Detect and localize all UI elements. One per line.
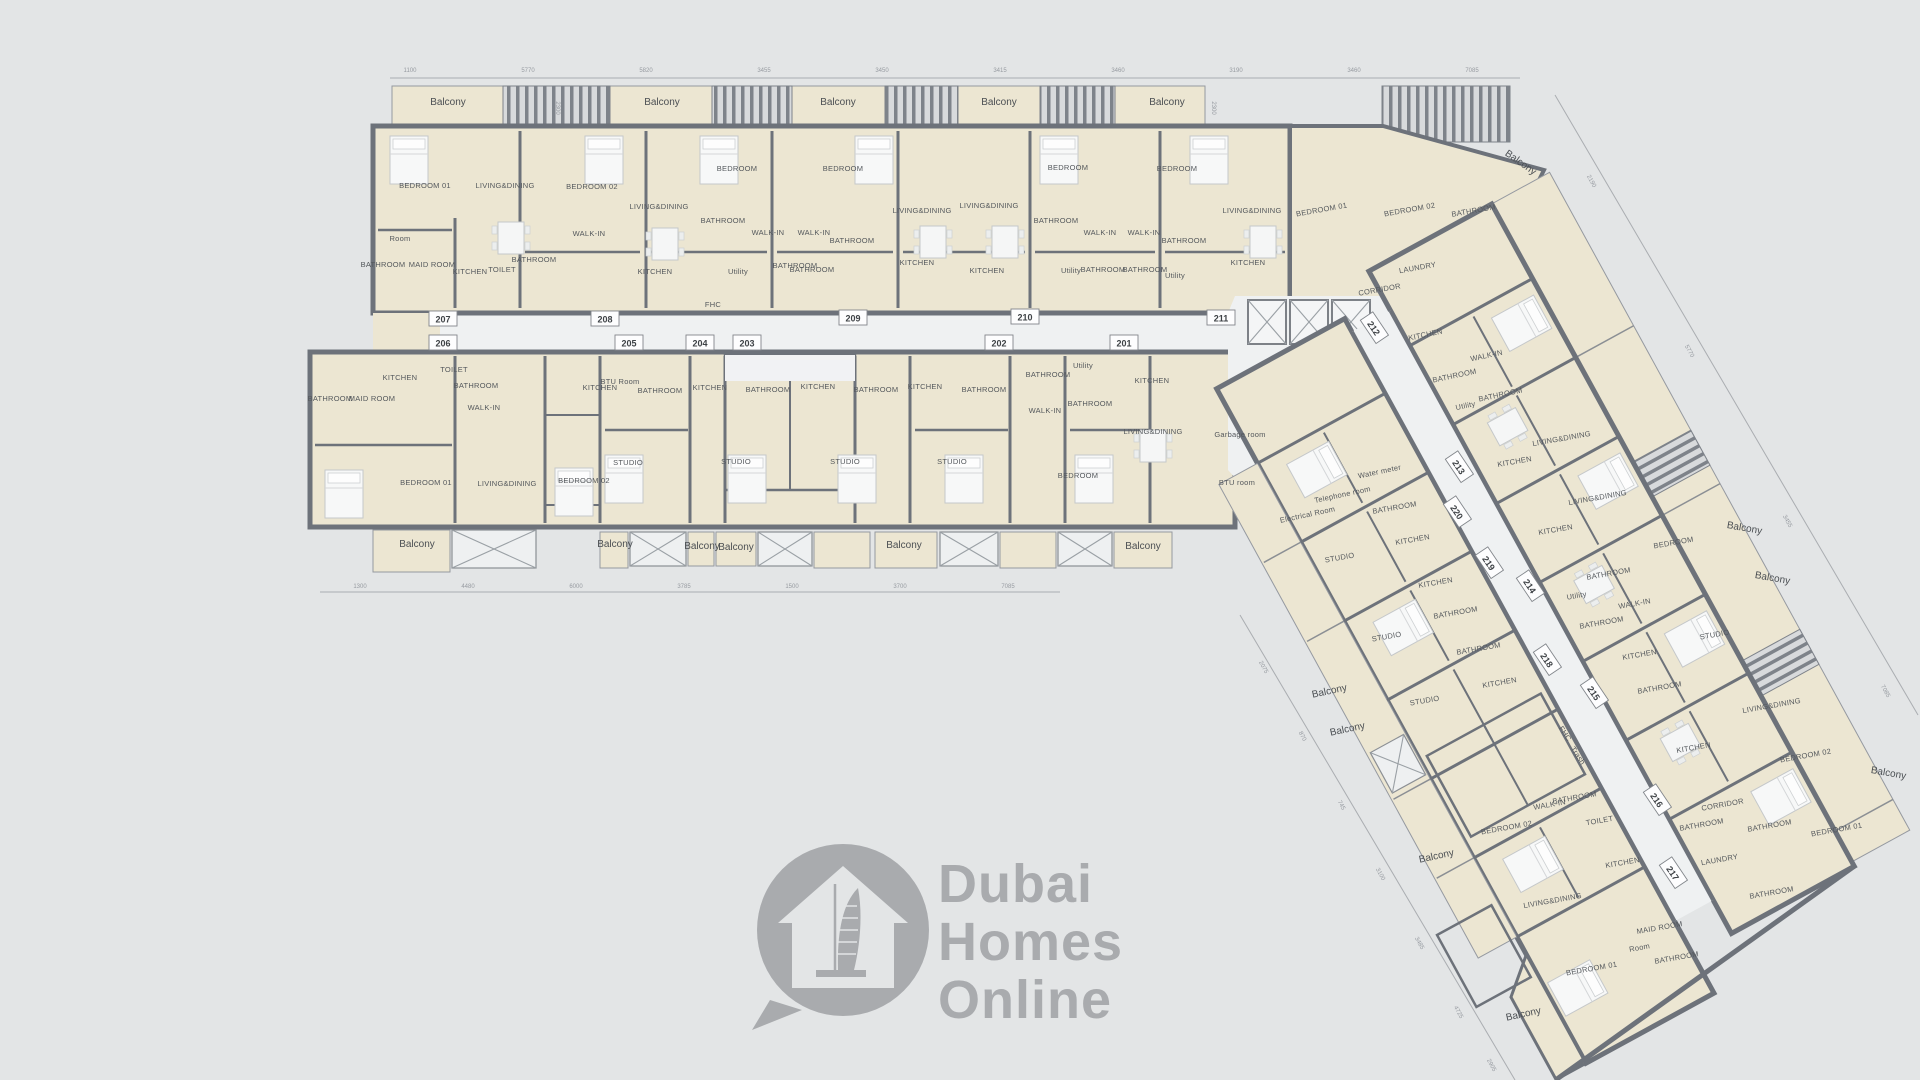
- room-label: KITCHEN: [693, 383, 728, 392]
- room-label: WALK-IN: [1029, 406, 1062, 415]
- room-label: BATHROOM: [512, 255, 557, 264]
- room-label: BATHROOM: [830, 236, 875, 245]
- service-room-label: BTU room: [1219, 478, 1255, 487]
- room-label: KITCHEN: [801, 382, 836, 391]
- room-label: BATHROOM: [638, 386, 683, 395]
- balcony-label: Balcony: [820, 97, 856, 108]
- room-label: Utility: [1165, 271, 1185, 280]
- svg-text:206: 206: [435, 339, 450, 349]
- room-label: TOILET: [488, 265, 516, 274]
- room-label: MAID ROOM: [349, 394, 395, 403]
- room-label: BATHROOM: [1026, 370, 1071, 379]
- room-label: KITCHEN: [1231, 258, 1266, 267]
- room-label: Room: [389, 234, 410, 243]
- room-label: BATHROOM: [361, 260, 406, 269]
- unit-number-tag: 210: [1011, 309, 1039, 324]
- room-label: LIVING&DINING: [1222, 206, 1281, 215]
- unit-number-tag: 204: [686, 335, 714, 350]
- balcony-label: Balcony: [1125, 541, 1161, 552]
- svg-text:201: 201: [1116, 339, 1131, 349]
- room-label: BATHROOM: [1068, 399, 1113, 408]
- service-room-label: Garbage room: [1214, 430, 1265, 439]
- room-label: KITCHEN: [908, 382, 943, 391]
- dimension-label: 1100: [404, 68, 418, 74]
- svg-text:209: 209: [845, 314, 860, 324]
- room-label: BEDROOM: [823, 164, 864, 173]
- svg-text:204: 204: [692, 339, 707, 349]
- service-room-label: FHC: [705, 300, 721, 309]
- louver-screen: [1040, 86, 1115, 130]
- room-label: BATHROOM: [746, 385, 791, 394]
- dimension-label: 2300: [1210, 101, 1216, 115]
- room-label: BATHROOM: [308, 394, 353, 403]
- unit-number-tag: 207: [429, 311, 457, 326]
- unit-number-tag: 209: [839, 310, 867, 325]
- room-label: BEDROOM: [1048, 163, 1089, 172]
- room-label: BEDROOM 01: [399, 181, 451, 190]
- room-label: Utility: [1073, 361, 1093, 370]
- room-label: BATHROOM: [701, 216, 746, 225]
- room-label: BEDROOM: [1058, 471, 1099, 480]
- unit-number-tag: 202: [985, 335, 1013, 350]
- room-label: BATHROOM: [790, 265, 835, 274]
- room-label: WALK-IN: [798, 228, 831, 237]
- room-label: Utility: [728, 267, 748, 276]
- svg-text:202: 202: [991, 339, 1006, 349]
- dimension-label: 7085: [1001, 584, 1015, 590]
- balcony-label: Balcony: [399, 539, 435, 550]
- room-label: BEDROOM: [1157, 164, 1198, 173]
- room-label: KITCHEN: [453, 267, 488, 276]
- svg-text:203: 203: [739, 339, 754, 349]
- room-label: KITCHEN: [1135, 376, 1170, 385]
- balcony-label: Balcony: [981, 97, 1017, 108]
- bottom-balcony-strip: [373, 530, 1172, 572]
- room-label: BATHROOM: [854, 385, 899, 394]
- dimension-label: 1300: [353, 584, 367, 590]
- room-label: WALK-IN: [1128, 228, 1161, 237]
- balcony-label: Balcony: [644, 97, 680, 108]
- room-label: TOILET: [440, 365, 468, 374]
- room-label: STUDIO: [721, 457, 751, 466]
- dimension-label: 3700: [893, 584, 907, 590]
- dimension-label: 3450: [875, 68, 889, 74]
- room-label: LIVING&DINING: [892, 206, 951, 215]
- room-label: BATHROOM: [1081, 265, 1126, 274]
- balcony-label: Balcony: [1149, 97, 1185, 108]
- room-label: BATHROOM: [1162, 236, 1207, 245]
- dimension-label: 2300: [554, 101, 560, 115]
- balcony-label: Balcony: [886, 540, 922, 551]
- room-label: BATHROOM: [1123, 265, 1168, 274]
- room-label: STUDIO: [613, 458, 643, 467]
- unit-number-tag: 201: [1110, 335, 1138, 350]
- room-label: BEDROOM 02: [558, 476, 610, 485]
- service-room-label: BTU Room: [600, 377, 639, 386]
- louver-screen: [712, 86, 792, 130]
- floor-plan-canvas: BEDROOM 01LIVING&DININGBEDROOM 02RoomBAT…: [0, 0, 1920, 1080]
- room-label: BEDROOM: [717, 164, 758, 173]
- room-label: KITCHEN: [900, 258, 935, 267]
- top-row-slab: [373, 126, 1290, 313]
- room-label: MAID ROOM: [409, 260, 455, 269]
- svg-text:210: 210: [1017, 313, 1032, 323]
- room-label: KITCHEN: [638, 267, 673, 276]
- dimension-label: 3455: [757, 68, 771, 74]
- balcony-label: Balcony: [684, 541, 720, 552]
- watermark-line-1: Dubai: [938, 854, 1093, 914]
- room-label: LIVING&DINING: [475, 181, 534, 190]
- watermark-logo: Dubai Homes Online: [752, 844, 1123, 1030]
- dimension-label: 3785: [677, 584, 691, 590]
- svg-text:211: 211: [1214, 314, 1229, 324]
- dimension-label: 3460: [1347, 68, 1361, 74]
- room-label: BEDROOM 02: [566, 182, 618, 191]
- room-label: KITCHEN: [383, 373, 418, 382]
- room-label: WALK-IN: [1084, 228, 1117, 237]
- dimension-label: 3415: [993, 68, 1007, 74]
- dimension-label: 3190: [1229, 68, 1243, 74]
- room-label: WALK-IN: [468, 403, 501, 412]
- watermark-line-3: Online: [938, 970, 1112, 1030]
- room-label: STUDIO: [830, 457, 860, 466]
- room-label: WALK-IN: [752, 228, 785, 237]
- unit-number-tag: 211: [1207, 310, 1235, 325]
- stair-landing: [725, 355, 855, 381]
- room-label: LIVING&DINING: [959, 201, 1018, 210]
- balcony-label: Balcony: [597, 539, 633, 550]
- svg-text:208: 208: [597, 315, 612, 325]
- dimension-label: 7085: [1465, 68, 1479, 74]
- dimension-label: 5770: [521, 68, 535, 74]
- svg-text:207: 207: [435, 315, 450, 325]
- room-label: BATHROOM: [962, 385, 1007, 394]
- room-label: WALK-IN: [573, 229, 606, 238]
- svg-text:205: 205: [621, 339, 636, 349]
- unit-number-tag: 206: [429, 335, 457, 350]
- dimension-label: 6000: [569, 584, 583, 590]
- louver-screen: [885, 86, 958, 130]
- room-label: BEDROOM 01: [400, 478, 452, 487]
- room-label: STUDIO: [937, 457, 967, 466]
- dimension-label: 5820: [639, 68, 653, 74]
- watermark-line-2: Homes: [938, 912, 1123, 972]
- room-label: Utility: [1061, 266, 1081, 275]
- room-label: KITCHEN: [970, 266, 1005, 275]
- unit-number-tag: 203: [733, 335, 761, 350]
- unit-number-tag: 205: [615, 335, 643, 350]
- unit-number-tag: 208: [591, 311, 619, 326]
- room-label: BATHROOM: [1034, 216, 1079, 225]
- room-label: LIVING&DINING: [477, 479, 536, 488]
- dimension-label: 4480: [461, 584, 475, 590]
- room-label: LIVING&DINING: [629, 202, 688, 211]
- balcony-label: Balcony: [718, 542, 754, 553]
- dimension-label: 1500: [785, 584, 799, 590]
- balcony-label: Balcony: [430, 97, 466, 108]
- room-label: BATHROOM: [454, 381, 499, 390]
- room-label: LIVING&DINING: [1123, 427, 1182, 436]
- dimension-label: 3460: [1111, 68, 1125, 74]
